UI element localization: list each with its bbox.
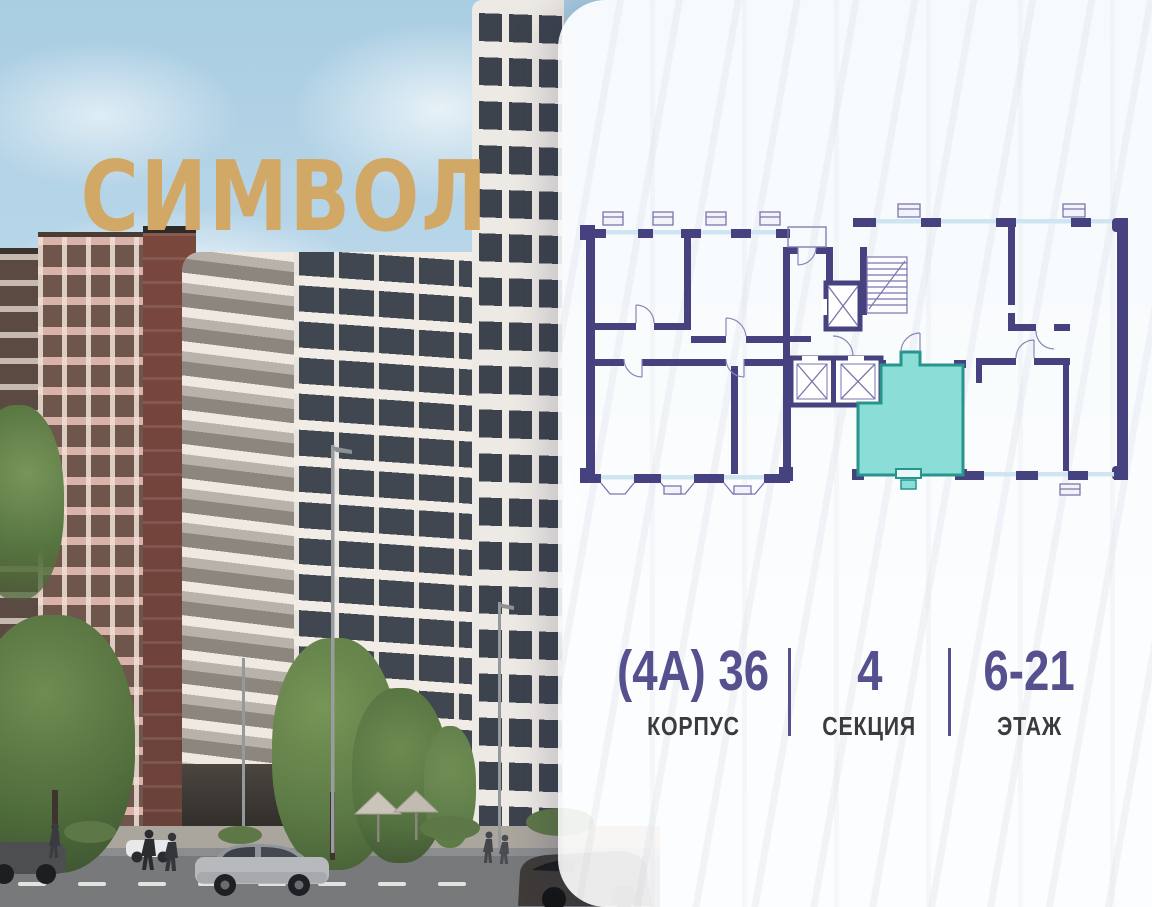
floorplan-svg <box>576 203 1138 499</box>
balcony-tab <box>901 480 916 489</box>
sektsiya-label: СЕКЦИЯ <box>791 711 948 742</box>
korpus-label: КОРПУС <box>598 711 788 742</box>
stat-sektsiya: 4 СЕКЦИЯ <box>791 642 948 742</box>
apartment-info-panel: (4А) 36 КОРПУС 4 СЕКЦИЯ 6-21 ЭТАЖ <box>558 0 1152 907</box>
etazh-value: 6-21 <box>984 642 1075 702</box>
stat-korpus: (4А) 36 КОРПУС <box>598 642 788 742</box>
bushes <box>64 808 594 844</box>
korpus-value: (4А) 36 <box>617 642 769 702</box>
car-sedan <box>195 844 329 896</box>
stat-etazh: 6-21 ЭТАЖ <box>951 642 1108 742</box>
floorplan-walls <box>580 218 1128 483</box>
sektsiya-value: 4 <box>857 642 882 702</box>
apartment-stats: (4А) 36 КОРПУС 4 СЕКЦИЯ 6-21 ЭТАЖ <box>598 642 1108 742</box>
etazh-label: ЭТАЖ <box>951 711 1108 742</box>
balcony-door <box>896 469 921 478</box>
project-logo: СИМВОЛ <box>81 148 450 245</box>
stairs-icon <box>867 257 907 313</box>
